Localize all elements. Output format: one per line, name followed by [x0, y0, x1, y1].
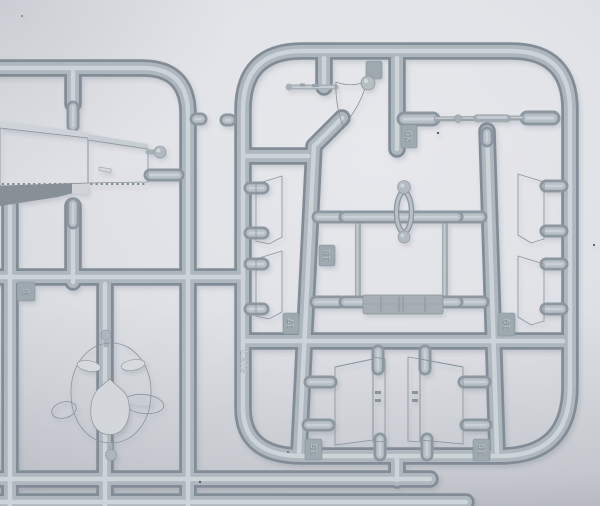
intake-box-right-part	[408, 357, 463, 444]
cowl-ear-left	[50, 399, 78, 421]
eye-hole-right	[120, 358, 145, 372]
rod-part	[434, 115, 524, 123]
number-tab-6	[17, 282, 35, 301]
number-tab-20	[401, 125, 417, 148]
number-tab-15	[305, 439, 322, 460]
panel-slot	[99, 167, 111, 173]
sprue-graphic	[0, 0, 600, 506]
fin-ball	[361, 76, 375, 90]
sprue-photo: 6 20 18 17 19 15 16 Late	[0, 0, 600, 506]
ball-pin	[154, 146, 166, 158]
number-tab-18	[319, 245, 335, 266]
number-tab-17	[283, 313, 299, 334]
wing-panel-part	[0, 121, 166, 206]
number-tab-16	[473, 439, 490, 461]
number-tab-19	[498, 313, 515, 336]
